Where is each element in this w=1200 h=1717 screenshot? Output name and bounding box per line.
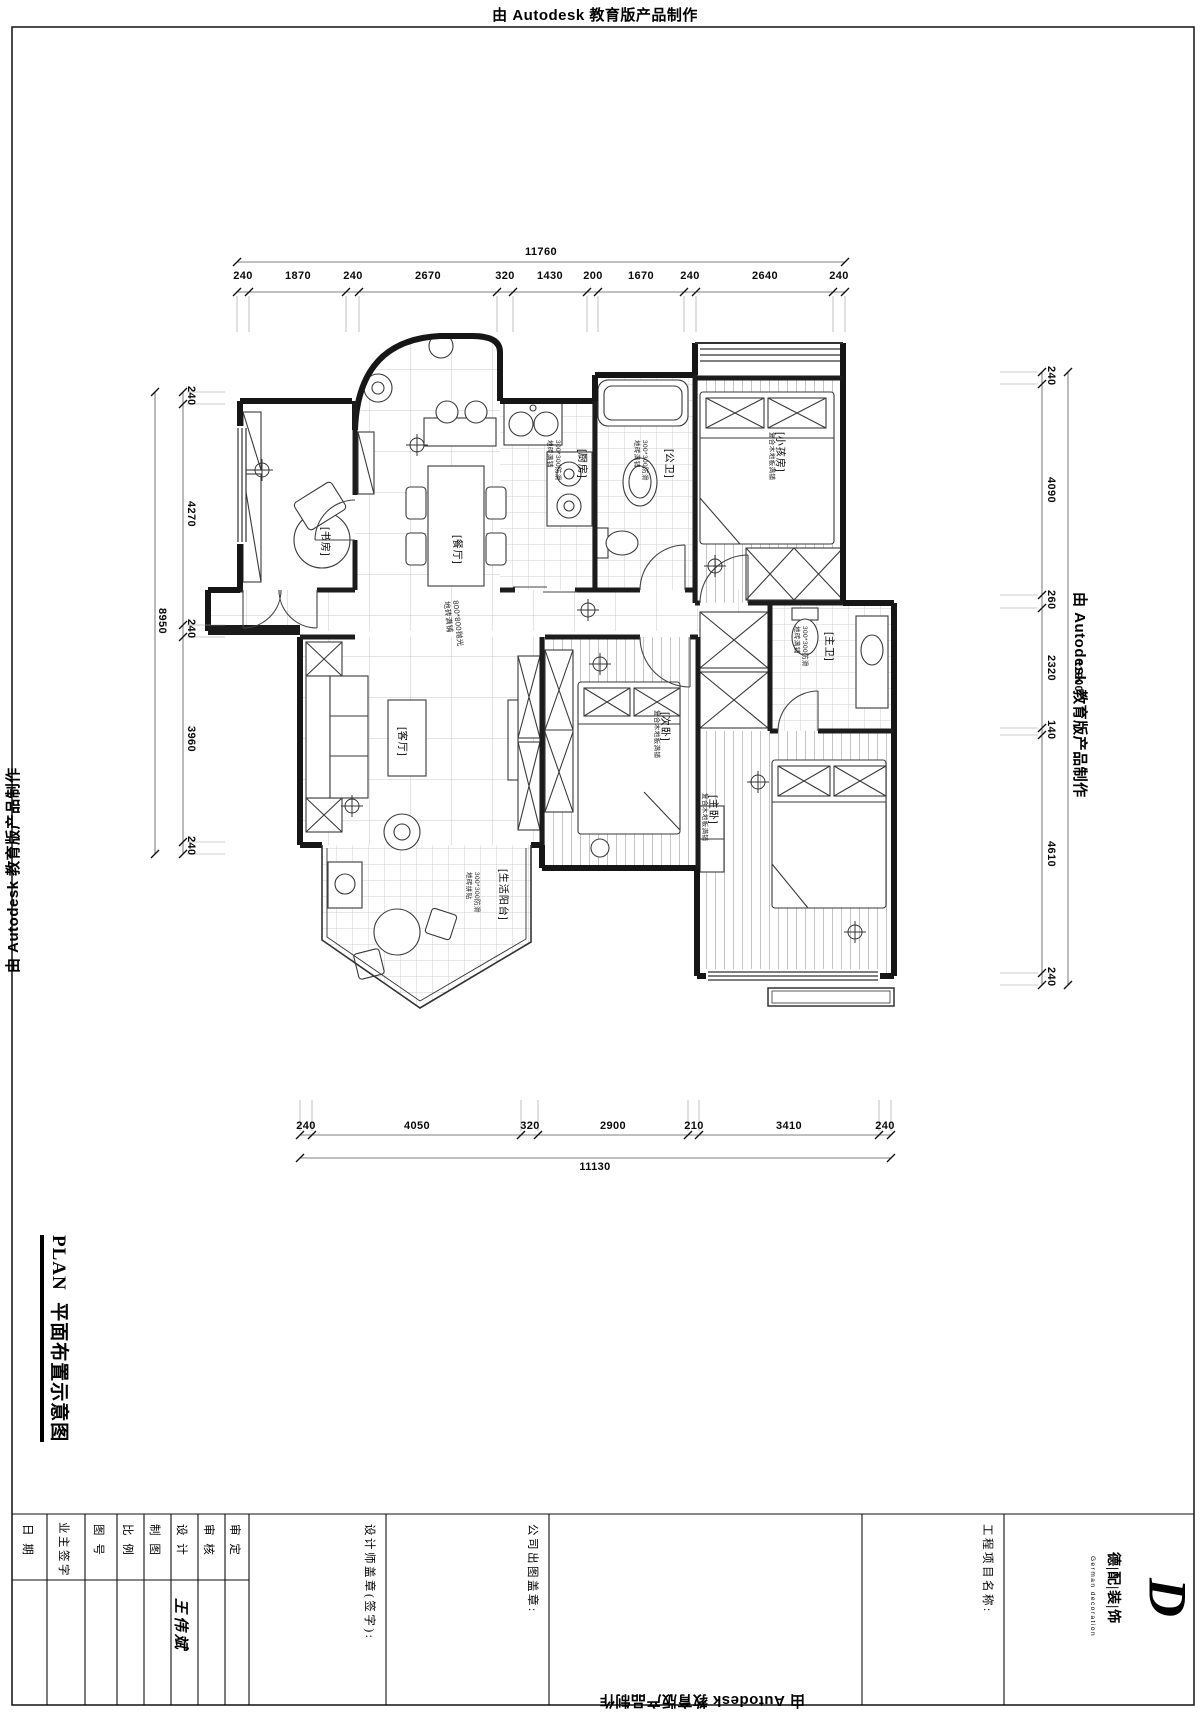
floor-note-second-bed: 复合木地板满铺	[652, 710, 660, 758]
dim-right-seg: 260	[1045, 590, 1057, 610]
floor-note-master-bed: 复合木地板满铺	[700, 793, 708, 841]
room-label-study: [书房]	[319, 527, 334, 557]
field-approved: 审 定	[227, 1524, 243, 1557]
room-label-public-bath: [公卫]	[663, 449, 678, 479]
room-label-kids: [小孩房]	[774, 432, 789, 473]
dim-top-seg: 240	[809, 270, 869, 282]
dim-bottom-seg: 240	[855, 1120, 915, 1132]
dim-top-seg: 240	[213, 270, 273, 282]
designer-signature: 王伟斌	[171, 1598, 192, 1652]
dim-top-seg: 2670	[398, 270, 458, 282]
dim-bottom-seg: 3410	[759, 1120, 819, 1132]
floor-note-corridor: 800*800抛光地砖满铺	[442, 598, 483, 648]
dim-right-seg: 140	[1045, 720, 1057, 740]
autodesk-stamp-top: 由 Autodesk 教育版产品制作	[395, 4, 795, 25]
dim-bottom-total: 11130	[565, 1161, 625, 1173]
project-name-label: 工程项目名称:	[980, 1524, 996, 1614]
floor-note-kitchen: 300*300防滑地砖满铺	[545, 440, 577, 481]
autodesk-stamp-bottom: 由 Autodesk 教育版产品制作	[599, 1691, 805, 1712]
field-drawing-no: 图 号	[91, 1524, 107, 1557]
room-label-living: [客厅]	[396, 727, 411, 757]
room-label-second-bed: [次卧]	[659, 712, 674, 742]
floor-note-balcony: 300*300防滑地砖拼贴	[464, 872, 496, 913]
dim-right-seg: 4610	[1045, 841, 1057, 867]
room-label-kitchen: [厨房]	[576, 449, 591, 479]
plan-title: PLAN 平面布置示意图	[40, 1235, 74, 1442]
dim-left-seg: 3960	[185, 726, 197, 752]
dim-top-total: 11760	[511, 246, 571, 258]
room-label-master-bed: [主卧]	[707, 795, 722, 825]
dim-left-total: 8950	[156, 608, 168, 634]
dim-top-seg: 240	[323, 270, 383, 282]
field-reviewed: 审 核	[201, 1524, 217, 1557]
company-logo-tagline: German decoration	[1089, 1556, 1096, 1637]
room-label-master-bath: [主卫]	[823, 632, 838, 662]
dim-top-seg: 2640	[735, 270, 795, 282]
floor-note-master-bath: 300*300防滑地砖满铺	[792, 626, 824, 667]
autodesk-stamp-left: 由 Autodesk 教育版产品制作	[2, 767, 23, 973]
field-scale: 比 例	[120, 1524, 136, 1557]
floor-plan-drawing: D	[0, 0, 1200, 1717]
dim-left-seg: 240	[185, 386, 197, 406]
autodesk-stamp-right: 由 Autodesk 教育版产品制作	[1070, 592, 1091, 798]
field-date: 日 期	[20, 1524, 36, 1557]
dim-bottom-seg: 2900	[583, 1120, 643, 1132]
dim-left-seg: 240	[185, 836, 197, 856]
company-logo-name: 德|配|装|饰	[1104, 1552, 1124, 1624]
dim-top-seg: 240	[660, 270, 720, 282]
dim-bottom-seg: 240	[276, 1120, 336, 1132]
designer-stamp-label: 设计师盖章(签字):	[362, 1524, 378, 1640]
plan-title-block: PLAN 平面布置示意图 SCALE1:50	[0, 1235, 110, 1442]
room-label-balcony: [生活阳台]	[497, 869, 512, 921]
floor-note-kids: 复合木地板满铺	[767, 432, 775, 480]
dim-bottom-seg: 4050	[387, 1120, 447, 1132]
room-label-dining: [餐厅]	[451, 535, 466, 565]
dim-bottom-seg: 320	[500, 1120, 560, 1132]
company-logo-mark: D	[1138, 1577, 1198, 1617]
company-stamp-label: 公司出图盖章:	[525, 1524, 541, 1614]
dim-right-total: 11900	[1072, 660, 1084, 692]
dim-right-seg: 240	[1045, 366, 1057, 386]
dim-left-seg: 4270	[185, 501, 197, 527]
dim-bottom-seg: 210	[664, 1120, 724, 1132]
field-drafted: 制 图	[147, 1524, 163, 1557]
floor-note-public-bath: 300*300防滑地砖满铺	[632, 440, 664, 481]
dim-right-seg: 2320	[1045, 655, 1057, 681]
dim-top-seg: 1870	[268, 270, 328, 282]
drawing-sheet: D 由 Autodesk 教育版产品制作 由 Autodesk 教育版产品制作 …	[0, 0, 1200, 1717]
dim-right-seg: 240	[1045, 967, 1057, 987]
dim-right-seg: 4090	[1045, 477, 1057, 503]
dim-left-seg: 240	[185, 619, 197, 639]
field-owner-signature: 业主签字	[56, 1522, 72, 1578]
field-designed: 设 计	[174, 1524, 190, 1557]
